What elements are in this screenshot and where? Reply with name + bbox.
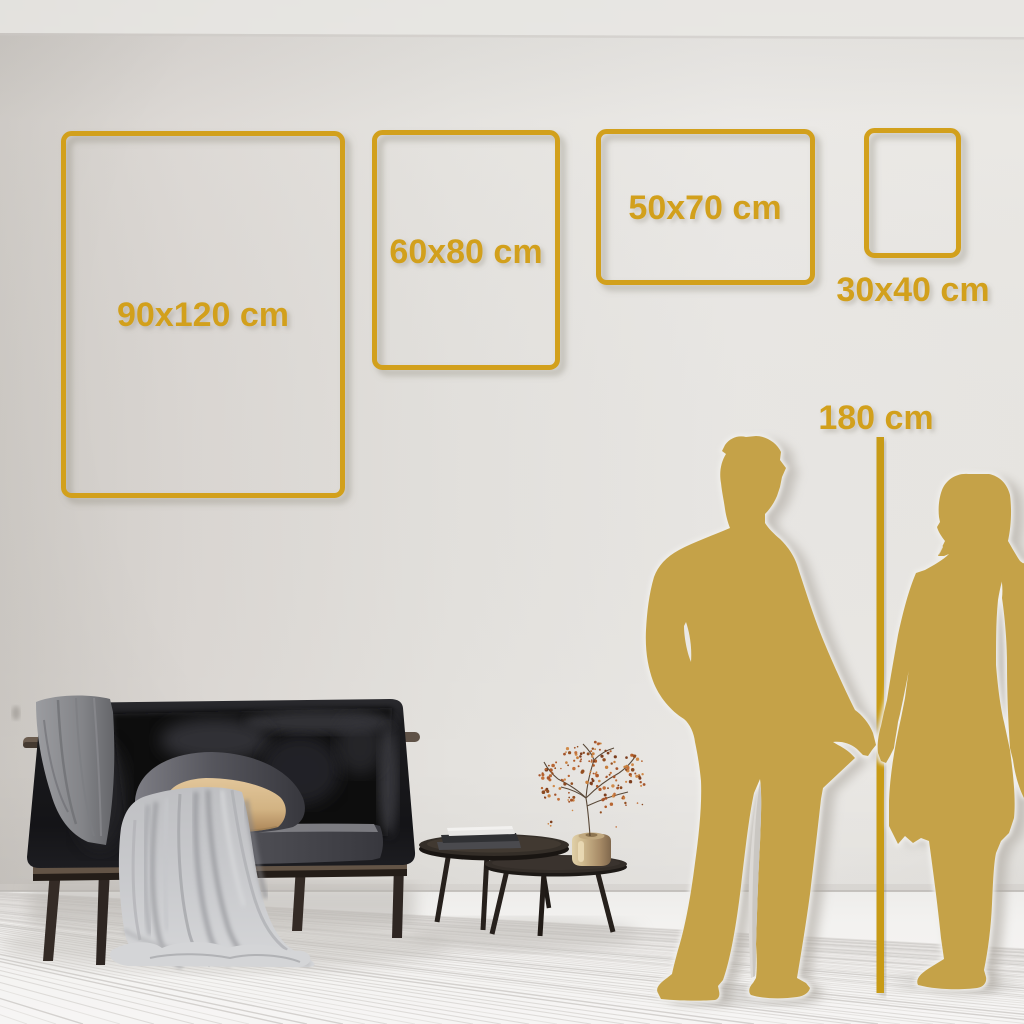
- svg-text:60x80 cm: 60x80 cm: [389, 233, 542, 271]
- svg-text:180 cm: 180 cm: [818, 399, 933, 437]
- svg-text:30x40 cm: 30x40 cm: [836, 271, 989, 309]
- svg-text:50x70 cm: 50x70 cm: [628, 189, 781, 227]
- svg-text:90x120 cm: 90x120 cm: [117, 296, 289, 334]
